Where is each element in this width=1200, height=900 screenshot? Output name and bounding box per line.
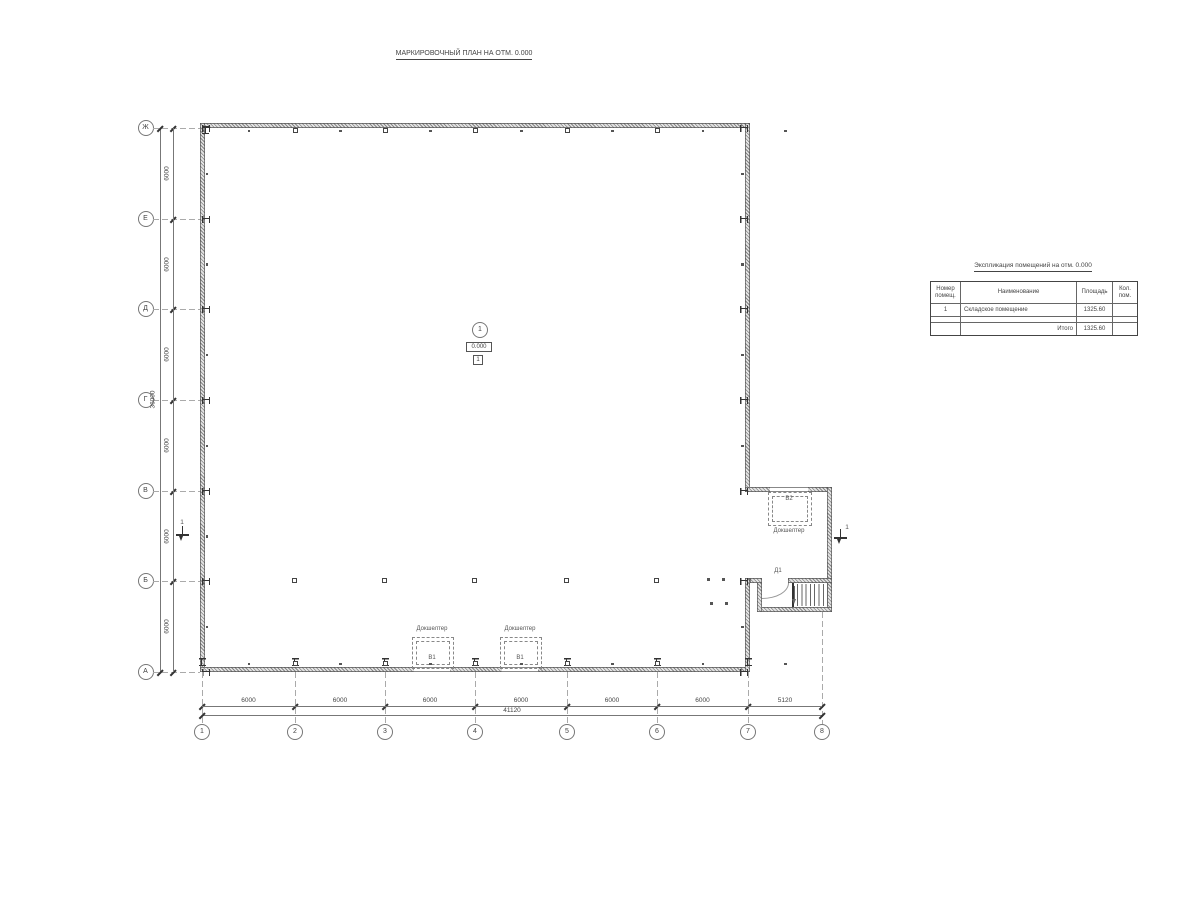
column-mark <box>740 216 748 223</box>
dim-value: 36000 <box>150 386 157 414</box>
dock-shelter-label-2: Докшелтер <box>490 626 550 633</box>
dock-shelter-1 <box>412 637 454 669</box>
plan-title: МАРКИРОВОЧНЫЙ ПЛАН НА ОТМ. 0.000 <box>364 50 564 60</box>
grid-circle-col-1: 2 <box>287 724 303 740</box>
gate-tag-2: В1 <box>510 655 530 662</box>
dim-value: 6000 <box>415 697 445 704</box>
grid-circle-col-6: 7 <box>740 724 756 740</box>
grid-circle-row-6: А <box>138 664 154 680</box>
room-number-bubble: 1 <box>472 322 488 338</box>
grid-circle-row-0: Ж <box>138 120 154 136</box>
dim-line-left-segments <box>173 128 174 672</box>
wall-annex-bottom <box>757 607 832 612</box>
wall-stud-dot <box>248 130 251 133</box>
column-mark <box>202 578 210 585</box>
pilaster-bottom <box>383 661 388 666</box>
dim-value: 6000 <box>164 613 171 641</box>
stair-arrow-line <box>794 586 795 600</box>
pilaster-top <box>293 128 298 133</box>
column-mark <box>202 669 210 676</box>
dim-line-bottom-total <box>202 715 822 716</box>
floor-type-box: 1 <box>473 355 483 365</box>
dim-value: 6000 <box>325 697 355 704</box>
dim-value: 6000 <box>506 697 536 704</box>
spec-cell: Складское помещение <box>961 304 1077 317</box>
section-mark-1-arrow-icon <box>179 536 183 541</box>
wall-stud-dot <box>520 663 523 666</box>
column-dot <box>725 602 728 605</box>
column-mark <box>199 658 206 666</box>
wall-stud-dot <box>741 263 744 266</box>
column-mark <box>202 306 210 313</box>
wall-stud-dot <box>784 663 787 666</box>
spec-cell: 1325.60 <box>1077 304 1113 317</box>
spec-table: Номер помещ. Наименование Площадь Кол. п… <box>930 281 1138 336</box>
gate-tag-3: В2 <box>779 496 799 503</box>
dim-value: 5120 <box>770 697 800 704</box>
pilaster-bottom <box>473 661 478 666</box>
grid-circle-col-7: 8 <box>814 724 830 740</box>
wall-stud-dot <box>741 354 744 357</box>
wall-stud-dot <box>206 263 209 266</box>
grid-circle-col-3: 4 <box>467 724 483 740</box>
column-dot <box>710 602 713 605</box>
dim-line-left-total <box>160 128 161 672</box>
door-swing-arc <box>762 583 789 599</box>
section-mark-2-label: 1 <box>841 524 853 531</box>
wall-stud-dot <box>702 130 705 133</box>
column-mark <box>740 578 748 585</box>
dim-value: 6000 <box>234 697 264 704</box>
pilaster-top <box>473 128 478 133</box>
column-dot <box>722 578 725 581</box>
spec-cell: 1 <box>931 304 961 317</box>
wall-stud-dot <box>206 173 209 176</box>
column-mark <box>740 125 748 132</box>
column-mark <box>745 658 752 666</box>
section-mark-1-label: 1 <box>176 519 188 526</box>
spec-header-area: Площадь <box>1077 282 1113 304</box>
spec-total-value: 1325.60 <box>1077 323 1113 335</box>
wall-stud-dot <box>741 173 744 176</box>
spec-cell <box>1113 304 1137 317</box>
wall-stud-dot <box>206 445 209 448</box>
pilaster-bottom <box>293 661 298 666</box>
spec-header-count: Кол. пом. <box>1113 282 1137 304</box>
spec-cell <box>1113 323 1137 335</box>
wall-stud-dot <box>429 130 432 133</box>
column-mark <box>740 397 748 404</box>
pilaster-top <box>655 128 660 133</box>
door-tag: Д1 <box>768 568 788 575</box>
dock-shelter-label-3: Докшелтер <box>759 528 819 535</box>
wall-stair-top-right <box>788 578 832 583</box>
dim-value: 41120 <box>497 707 527 714</box>
interior-column <box>654 578 659 583</box>
interior-column <box>564 578 569 583</box>
column-mark <box>740 306 748 313</box>
column-mark <box>202 126 209 134</box>
wall-stud-dot <box>741 445 744 448</box>
wall-stud-dot <box>702 663 705 666</box>
dim-value: 6000 <box>597 697 627 704</box>
spec-table-title: Экспликация помещений на отм. 0.000 <box>920 262 1146 272</box>
wall-stud-dot <box>520 130 523 133</box>
interior-column <box>292 578 297 583</box>
dim-value: 6000 <box>164 432 171 460</box>
wall-stud-dot <box>339 130 342 133</box>
section-mark-2-arrow-icon <box>837 539 841 544</box>
drawing-sheet: МАРКИРОВОЧНЫЙ ПЛАН НА ОТМ. 0.000 Д1 Докш… <box>0 0 1200 900</box>
wall-stud-dot <box>611 130 614 133</box>
dim-value: 6000 <box>164 160 171 188</box>
wall-stud-dot <box>206 535 209 538</box>
wall-stair-top-left <box>750 578 762 583</box>
pilaster-top <box>565 128 570 133</box>
dim-value: 6000 <box>164 341 171 369</box>
column-mark <box>202 216 210 223</box>
grid-circle-row-1: Е <box>138 211 154 227</box>
wall-stud-dot <box>206 354 209 357</box>
grid-circle-col-2: 3 <box>377 724 393 740</box>
pilaster-top <box>383 128 388 133</box>
grid-circle-col-4: 5 <box>559 724 575 740</box>
spec-table-title-text: Экспликация помещений на отм. 0.000 <box>974 262 1092 272</box>
pilaster-bottom <box>565 661 570 666</box>
grid-circle-row-5: Б <box>138 573 154 589</box>
wall-stud-dot <box>741 626 744 629</box>
wall-stud-dot <box>206 626 209 629</box>
wall-stud-dot <box>339 663 342 666</box>
column-mark <box>740 488 748 495</box>
interior-column <box>382 578 387 583</box>
wall-stud-dot <box>429 663 432 666</box>
dim-value: 6000 <box>688 697 718 704</box>
grid-circle-col-0: 1 <box>194 724 210 740</box>
column-mark <box>202 397 210 404</box>
interior-column <box>472 578 477 583</box>
dim-value: 6000 <box>164 522 171 550</box>
column-mark <box>740 669 748 676</box>
column-dot <box>707 578 710 581</box>
wall-stud-dot <box>248 663 251 666</box>
grid-circle-row-4: В <box>138 483 154 499</box>
spec-header-name: Наименование <box>961 282 1077 304</box>
gate-tag-1: В1 <box>422 655 442 662</box>
wall-stud-dot <box>784 130 787 133</box>
wall-stud-dot <box>611 663 614 666</box>
spec-header-number: Номер помещ. <box>931 282 961 304</box>
column-mark <box>202 488 210 495</box>
pilaster-bottom <box>655 661 660 666</box>
plan-title-text: МАРКИРОВОЧНЫЙ ПЛАН НА ОТМ. 0.000 <box>396 50 533 60</box>
room-elevation-box: 0.000 <box>466 342 492 352</box>
grid-circle-row-2: Д <box>138 301 154 317</box>
stair-arrow-icon <box>792 599 796 604</box>
stair-flight <box>797 584 828 606</box>
grid-circle-col-5: 6 <box>649 724 665 740</box>
dim-value: 6000 <box>164 250 171 278</box>
dock-shelter-label-1: Докшелтер <box>402 626 462 633</box>
spec-total-label: Итого <box>961 323 1077 335</box>
spec-cell <box>931 323 961 335</box>
